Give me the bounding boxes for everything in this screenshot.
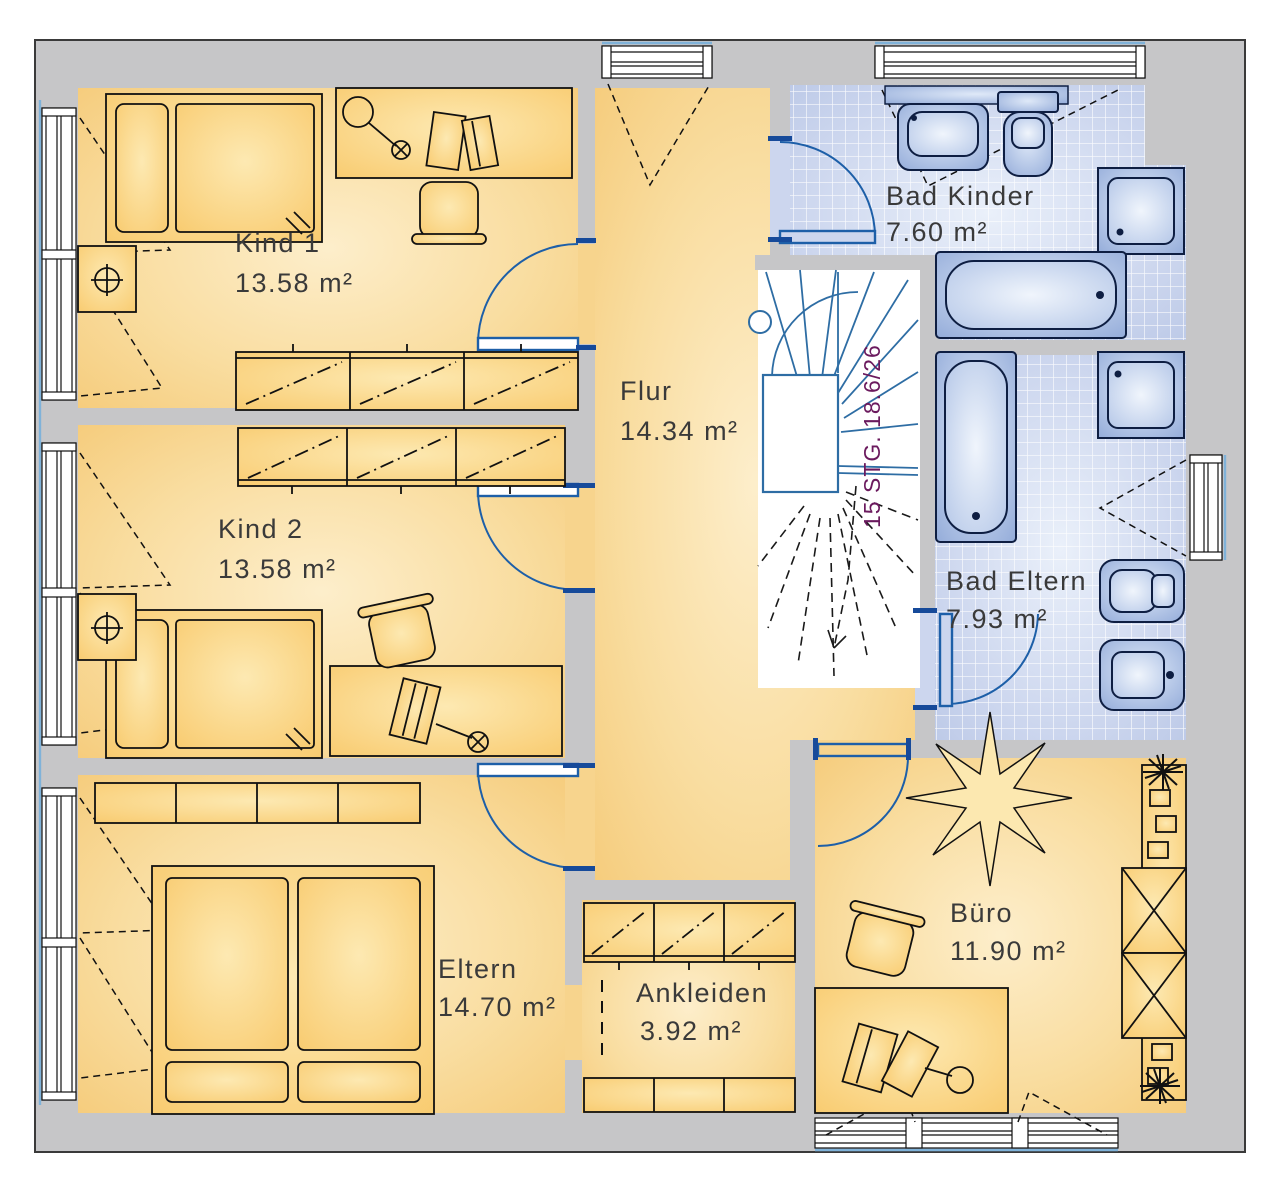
- stair-label: 15 STG. 18.6/26: [859, 344, 885, 528]
- floor-plan-svg: 15 STG. 18.6/26: [0, 0, 1282, 1200]
- toilet-icon: [998, 92, 1058, 176]
- cabinet-icon: [584, 1078, 795, 1112]
- wardrobe-x-icon: [1122, 868, 1186, 1038]
- label-flur-name: Flur: [620, 376, 673, 406]
- label-bad-kinder-area: 7.60 m²: [886, 217, 988, 247]
- wardrobe-icon: [236, 344, 578, 410]
- chair-icon: [412, 182, 486, 244]
- stair-post-icon: [749, 311, 771, 333]
- label-ankleiden-name: Ankleiden: [636, 978, 768, 1008]
- label-eltern-name: Eltern: [438, 954, 518, 984]
- wardrobe-icon: [238, 428, 565, 494]
- bidet-icon: [1100, 640, 1184, 710]
- label-kind2-name: Kind 2: [218, 514, 304, 544]
- sideboard-icon: [95, 783, 420, 823]
- label-kind1-area: 13.58 m²: [235, 268, 354, 298]
- label-kind1-name: Kind 1: [235, 228, 321, 258]
- stair-landing: [763, 375, 838, 492]
- floor-plan-page: 15 STG. 18.6/26: [0, 0, 1282, 1200]
- toilet-icon: [1100, 560, 1184, 622]
- stairwell: 15 STG. 18.6/26: [749, 255, 940, 688]
- label-eltern-area: 14.70 m²: [438, 992, 557, 1022]
- label-kind2-area: 13.58 m²: [218, 554, 337, 584]
- label-buero-area: 11.90 m²: [950, 936, 1067, 966]
- label-buero-name: Büro: [950, 898, 1013, 928]
- shower-icon: [1098, 352, 1184, 438]
- wardrobe-icon: [584, 903, 795, 970]
- label-bad-eltern-name: Bad Eltern: [946, 566, 1087, 596]
- bathtub-icon: [936, 352, 1016, 542]
- shower-icon: [1098, 168, 1184, 254]
- desk-icon: [330, 666, 562, 756]
- double-bed-icon: [152, 866, 434, 1114]
- label-ankleiden-area: 3.92 m²: [640, 1016, 742, 1046]
- label-bad-eltern-area: 7.93 m²: [946, 604, 1048, 634]
- label-flur-area: 14.34 m²: [620, 416, 739, 446]
- bathtub-icon: [936, 252, 1126, 338]
- sink-icon: [898, 104, 988, 170]
- label-bad-kinder-name: Bad Kinder: [886, 181, 1035, 211]
